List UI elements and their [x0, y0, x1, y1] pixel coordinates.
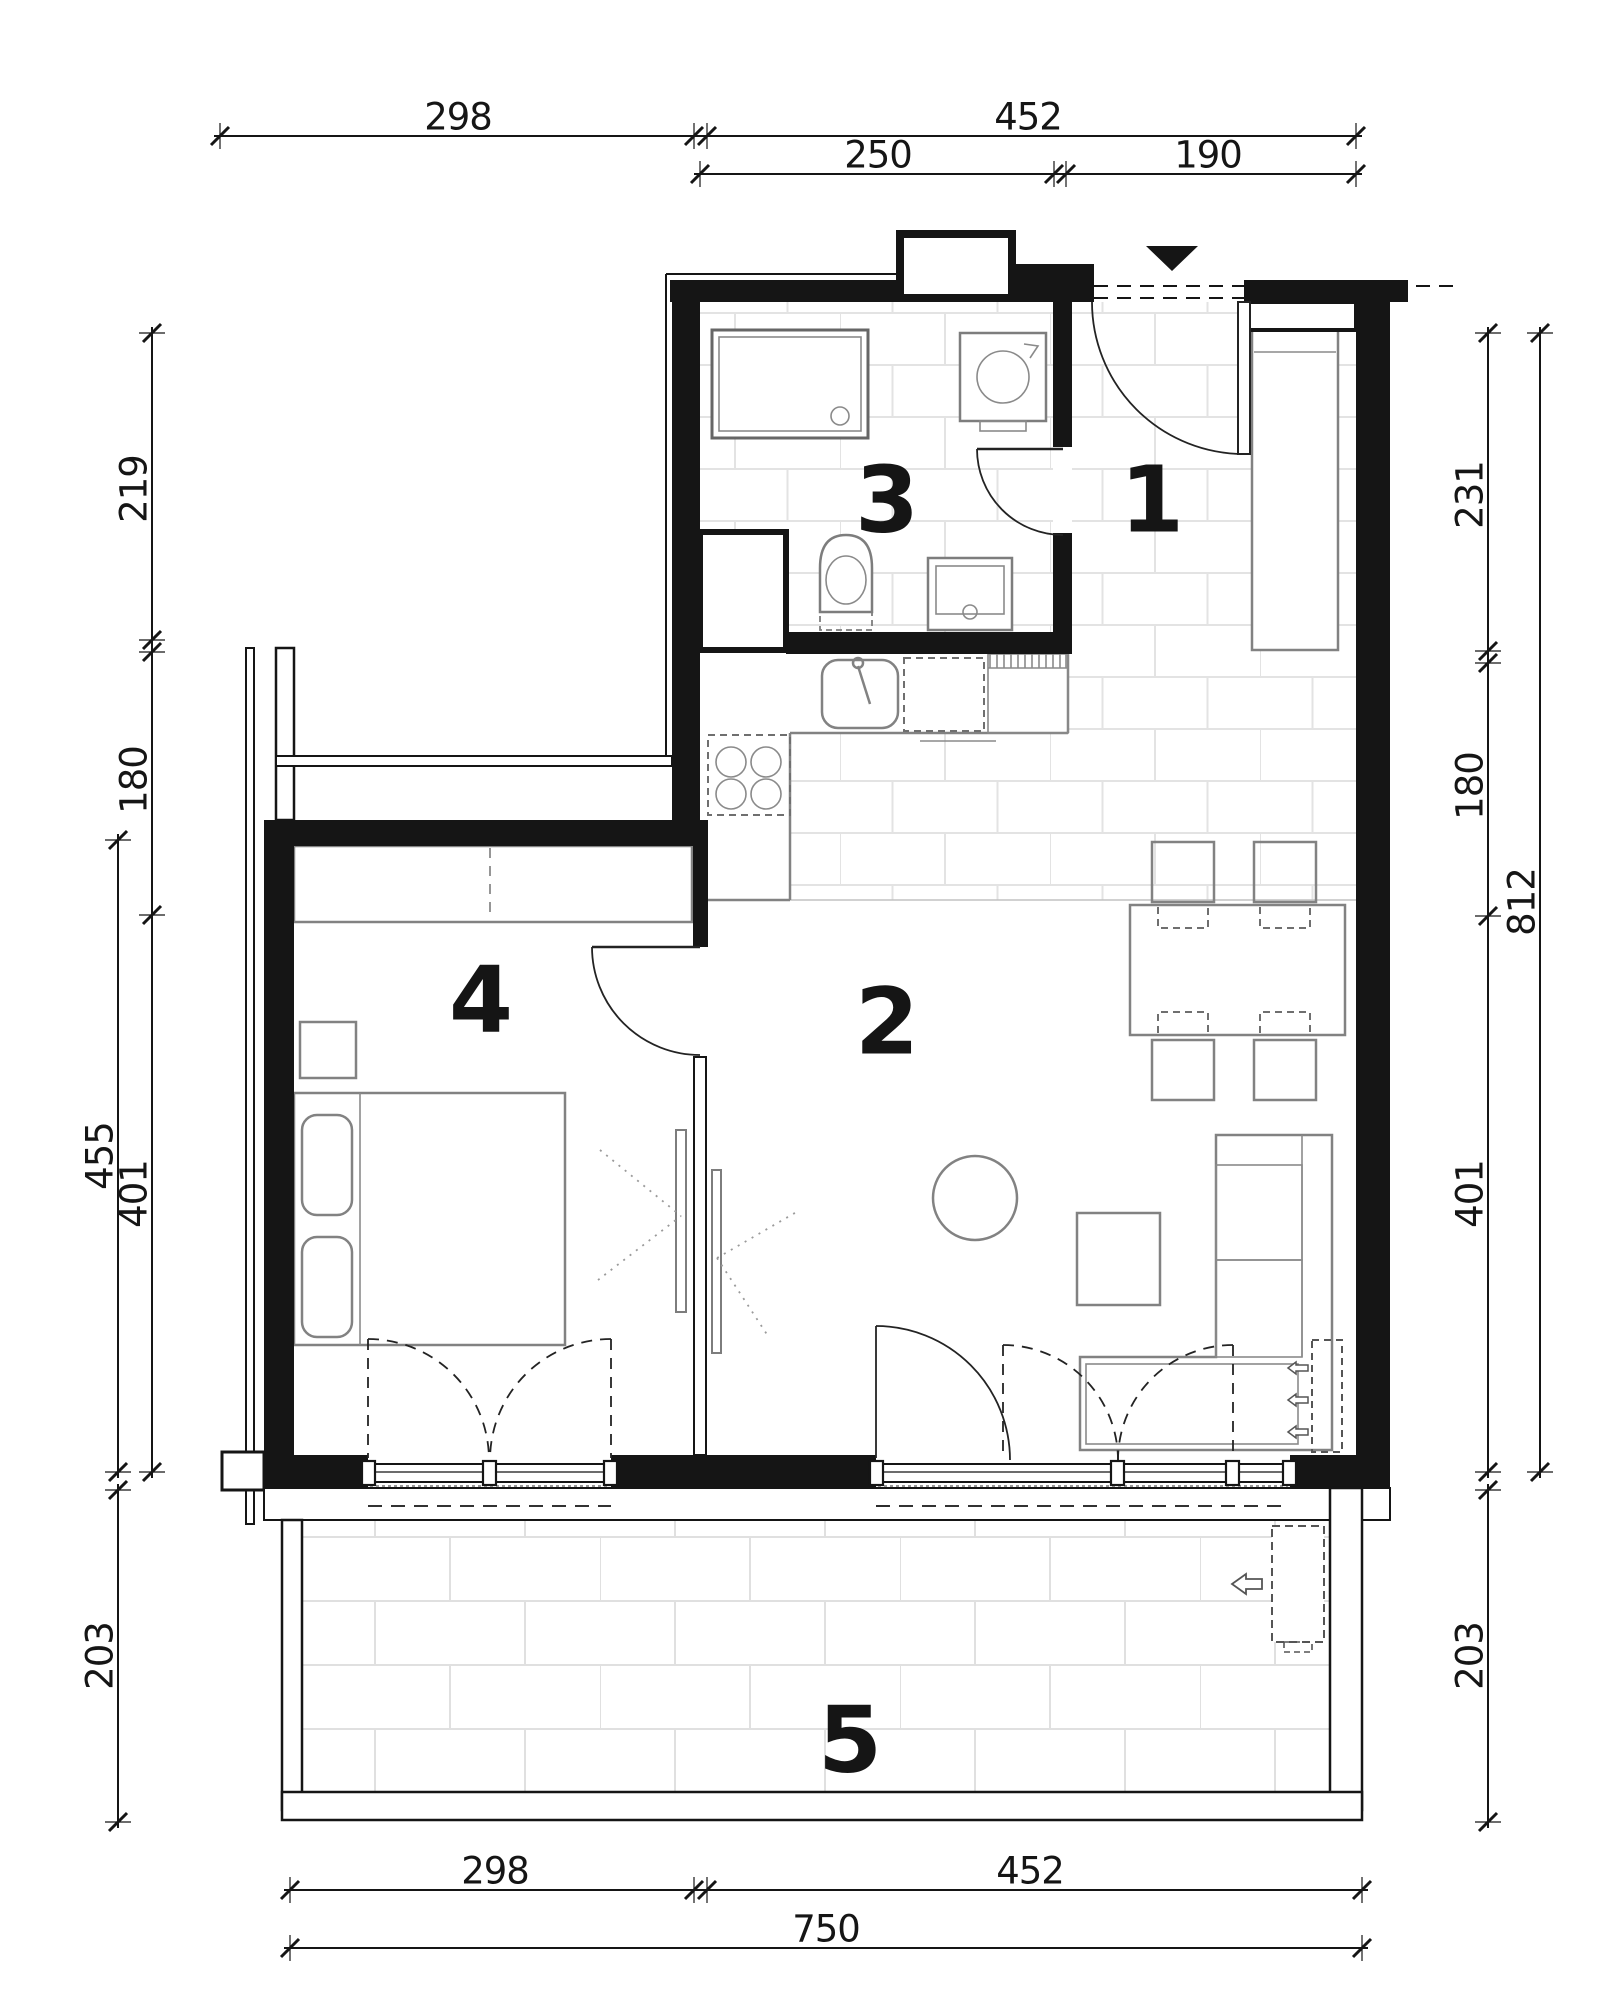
dim-top-right: 452 — [994, 96, 1062, 139]
hall-wardrobe — [1252, 328, 1338, 650]
west-wall — [264, 846, 294, 1488]
room-label-living: 2 — [855, 969, 919, 1076]
dim-bottom-left: 298 — [461, 1850, 529, 1893]
duct-shaft-top — [900, 234, 1012, 298]
room-label-terrace: 5 — [818, 1687, 882, 1794]
floor-plan-sheet: 1 3 2 4 5 298 452 250 190 219 180 401 45… — [0, 0, 1608, 2014]
terrace-floor — [302, 1520, 1330, 1792]
terrace-east-wall — [1330, 1488, 1362, 1810]
east-wall — [1356, 302, 1390, 1488]
dim-left-2: 180 — [113, 746, 156, 814]
floor-plan-drawing: 1 3 2 4 5 298 452 250 190 219 180 401 45… — [0, 0, 1608, 2014]
dim-right-1: 231 — [1449, 461, 1492, 529]
bedroom-north-wall — [264, 820, 708, 846]
hall — [1252, 328, 1338, 650]
dim-right-3: 401 — [1449, 1160, 1492, 1228]
bathroom-south-wall — [786, 632, 1072, 654]
sliding-panel — [676, 1130, 686, 1312]
bathroom-west-wall — [672, 302, 700, 845]
dim-right-terrace: 203 — [1449, 1622, 1492, 1690]
duct-shaft-bathroom — [700, 532, 786, 650]
dim-right-outer: 812 — [1501, 868, 1544, 936]
bedroom-wardrobe — [294, 846, 692, 922]
dim-top-sub-right: 190 — [1174, 134, 1242, 177]
dim-bottom-total: 750 — [792, 1908, 860, 1951]
kitchen-counter — [700, 654, 1068, 733]
dim-left-terrace: 203 — [79, 1622, 122, 1690]
room-label-bathroom: 3 — [855, 447, 919, 554]
room-label-hall: 1 — [1120, 447, 1184, 554]
terrace-south-wall — [282, 1792, 1362, 1820]
exterior-ledge — [246, 648, 254, 1524]
dim-bottom-right: 452 — [996, 1850, 1064, 1893]
shower-tray — [712, 330, 868, 438]
dim-right-2: 180 — [1449, 752, 1492, 820]
bathroom-sink — [928, 558, 1012, 630]
dim-top-sub-left: 250 — [844, 134, 912, 177]
dim-left-outer: 455 — [79, 1122, 122, 1190]
sliding-panel — [712, 1170, 721, 1353]
dim-left-1: 219 — [113, 455, 156, 523]
door-leaf — [1238, 302, 1250, 454]
room-label-bedroom: 4 — [449, 947, 513, 1054]
washing-machine — [960, 333, 1046, 431]
terrace-west-wall — [282, 1520, 302, 1810]
dim-top-left: 298 — [424, 96, 492, 139]
kitchen-counter-column — [708, 733, 790, 900]
